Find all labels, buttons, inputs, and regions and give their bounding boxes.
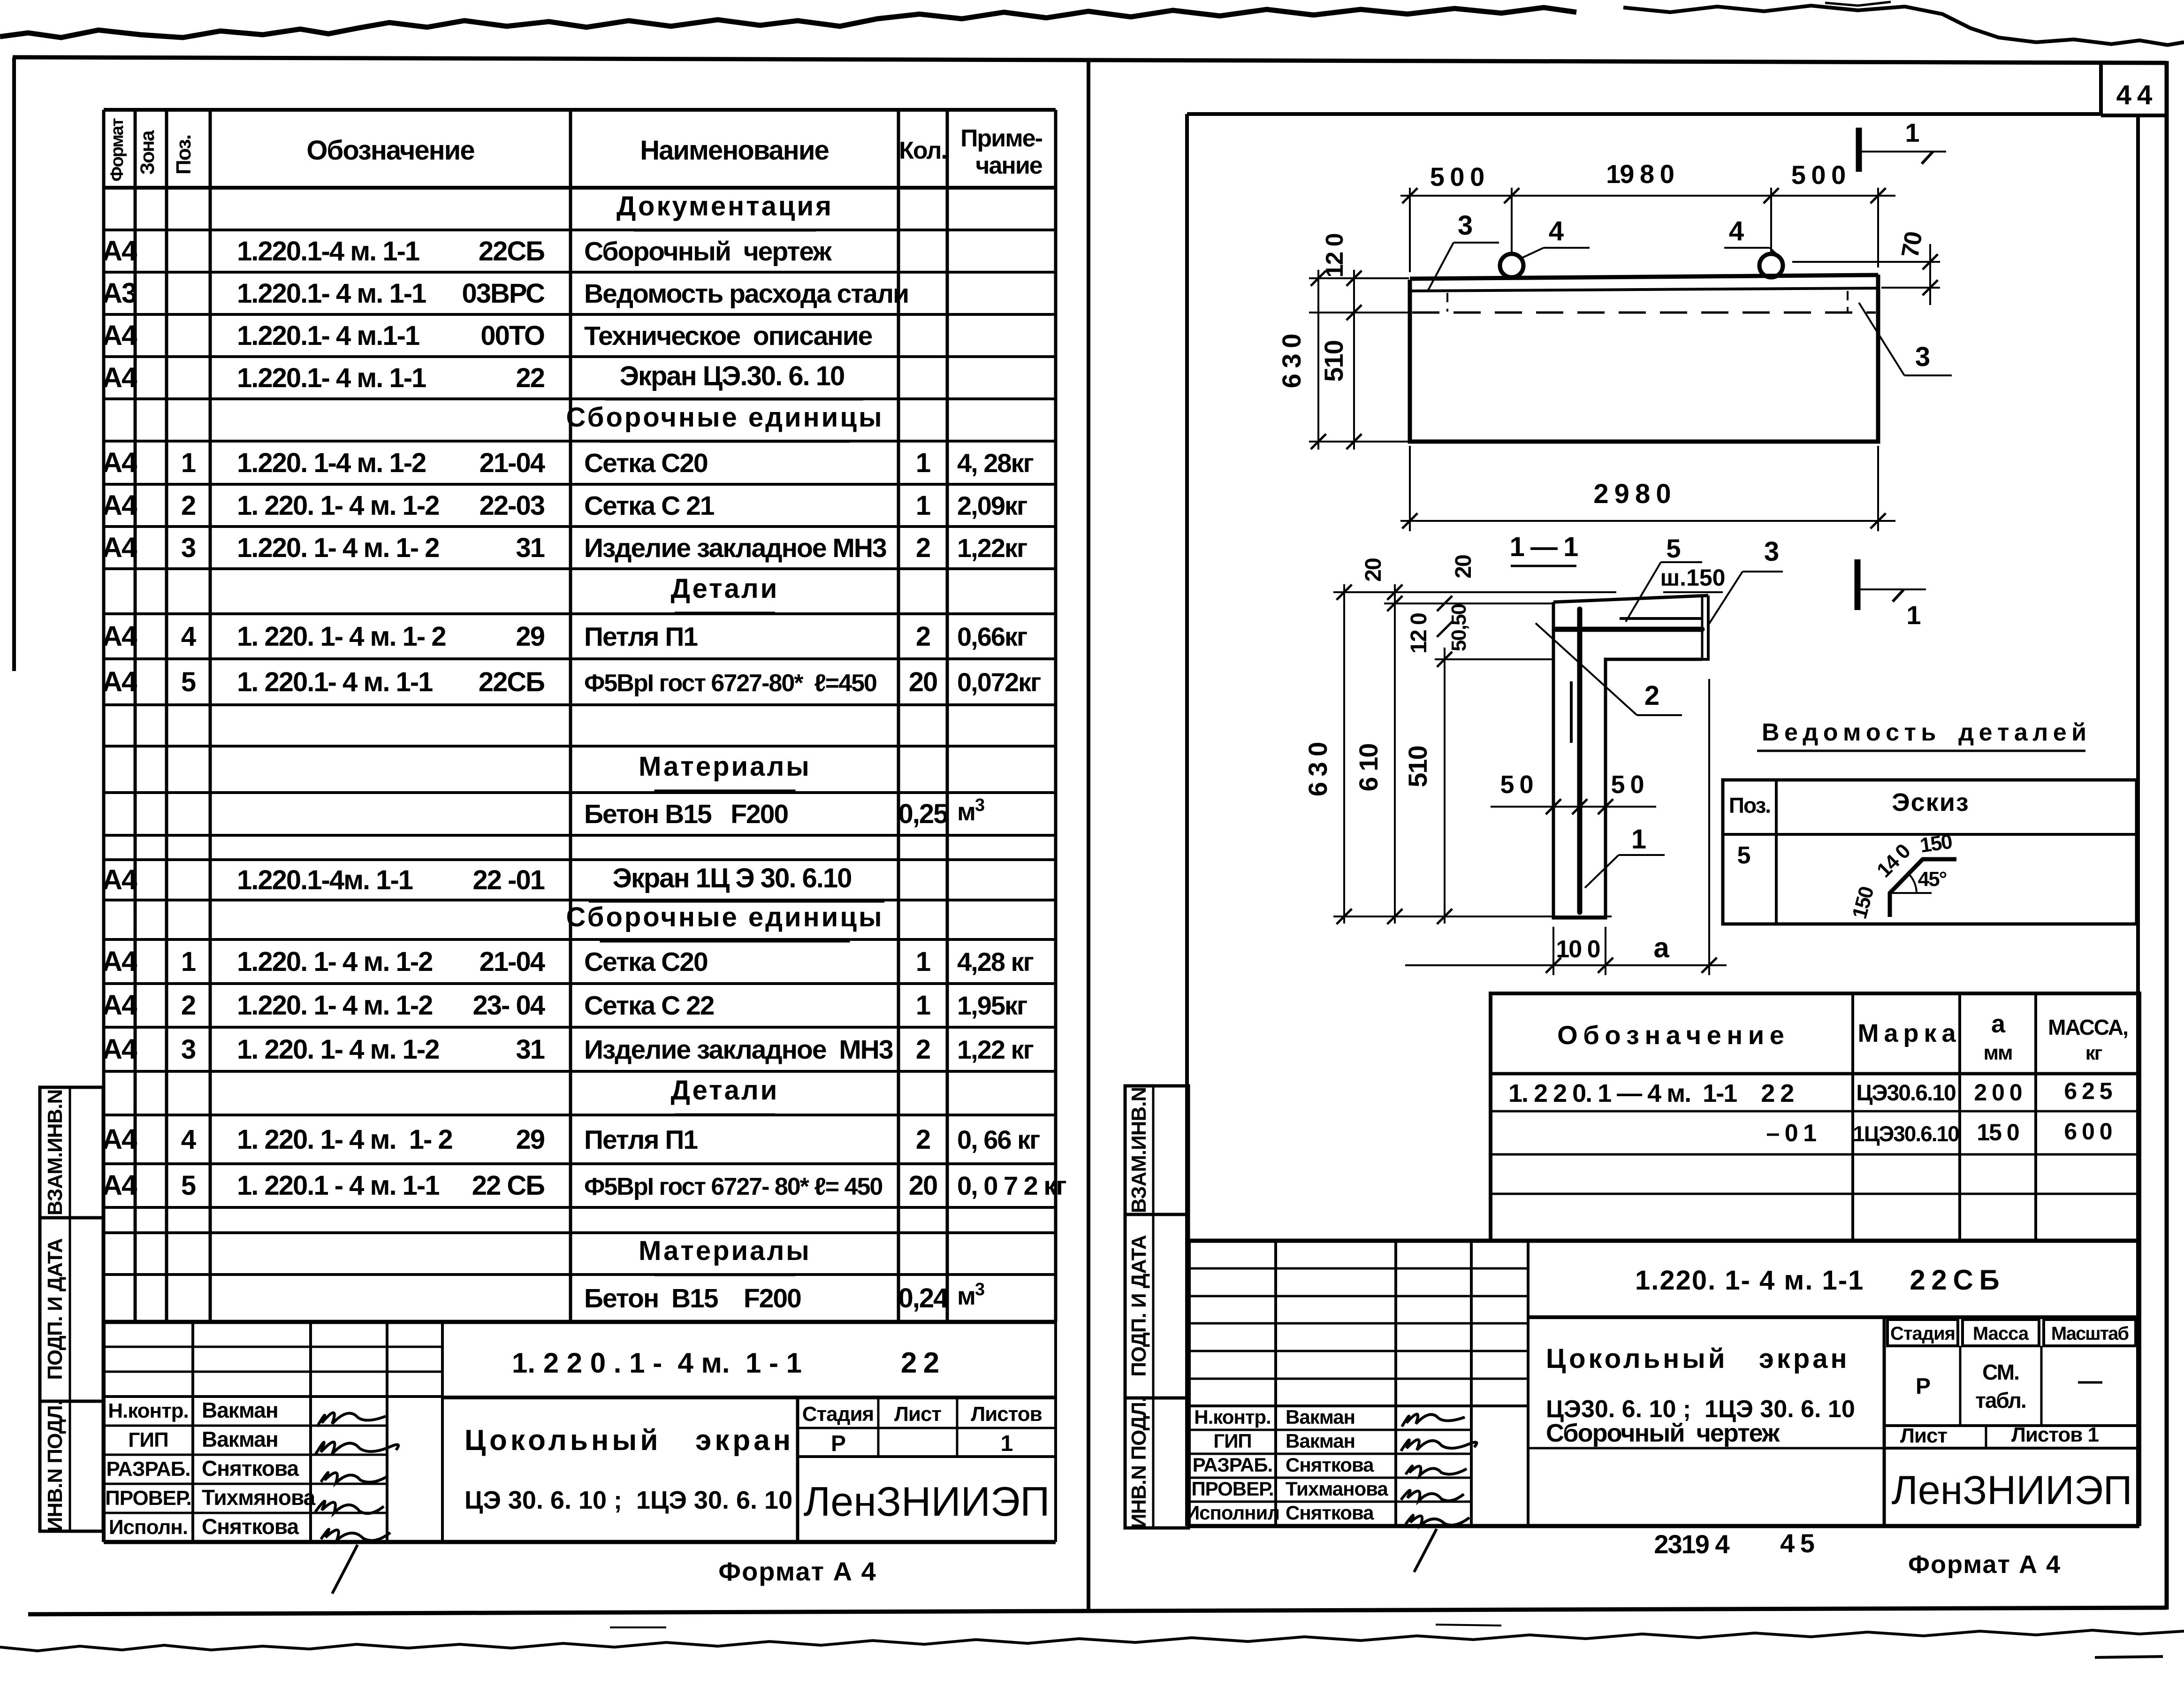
- svg-text:4,28 кг: 4,28 кг: [957, 947, 1034, 977]
- svg-text:150: 150: [1918, 830, 1953, 857]
- svg-text:5: 5: [181, 1170, 196, 1201]
- svg-text:45°: 45°: [1918, 868, 1947, 891]
- svg-text:2: 2: [916, 1034, 930, 1065]
- svg-text:1.220.1- 4 м.1-1: 1.220.1- 4 м.1-1: [237, 321, 419, 351]
- svg-text:М а р к а: М а р к а: [1857, 1019, 1956, 1047]
- svg-text:1. 220. 1- 4 м. 1- 2: 1. 220. 1- 4 м. 1- 2: [237, 621, 446, 652]
- svg-text:Материалы: Материалы: [639, 751, 811, 782]
- svg-text:1. 220.1- 4 м. 1-1: 1. 220.1- 4 м. 1-1: [237, 667, 433, 697]
- svg-text:Бетон В15 F200: Бетон В15 F200: [584, 1283, 801, 1313]
- svg-text:2: 2: [916, 533, 930, 563]
- svg-text:Цокольный экран: Цокольный экран: [1546, 1343, 1850, 1374]
- svg-text:Ф5ВрI гост 6727- 80* ℓ= 450: Ф5ВрI гост 6727- 80* ℓ= 450: [584, 1173, 882, 1200]
- svg-text:6 3 0: 6 3 0: [1277, 335, 1306, 389]
- svg-text:3: 3: [181, 1034, 196, 1065]
- svg-text:А4: А4: [102, 864, 137, 895]
- svg-text:5: 5: [1666, 534, 1680, 563]
- svg-text:кг: кг: [2085, 1042, 2102, 1064]
- svg-text:Тихманова: Тихманова: [1286, 1478, 1388, 1500]
- svg-text:1,22 кг: 1,22 кг: [957, 1035, 1034, 1064]
- svg-text:ГИП: ГИП: [1213, 1430, 1251, 1452]
- svg-text:2: 2: [916, 621, 930, 652]
- svg-text:22-03: 22-03: [479, 490, 545, 521]
- svg-text:ЦЭ30.6.10: ЦЭ30.6.10: [1856, 1081, 1956, 1106]
- svg-text:1.220.1-4 м. 1-1: 1.220.1-4 м. 1-1: [237, 236, 419, 267]
- svg-text:Экран ЦЭ.30. 6. 10: Экран ЦЭ.30. 6. 10: [620, 361, 845, 391]
- svg-text:—: —: [2078, 1367, 2102, 1395]
- svg-text:5 0: 5 0: [1611, 771, 1643, 799]
- svg-text:Сняткова: Сняткова: [202, 1456, 299, 1481]
- svg-text:Ф5ВрI гост 6727-80* ℓ=450: Ф5ВрI гост 6727-80* ℓ=450: [584, 670, 876, 697]
- svg-text:3: 3: [1764, 536, 1779, 567]
- svg-text:Поз.: Поз.: [1729, 793, 1770, 817]
- svg-text:– 0 1: – 0 1: [1766, 1120, 1816, 1147]
- svg-text:ПОДП. И ДАТА: ПОДП. И ДАТА: [1127, 1235, 1150, 1377]
- svg-text:4, 28кг: 4, 28кг: [957, 448, 1034, 478]
- svg-text:1: 1: [916, 490, 930, 521]
- svg-text:0,072кг: 0,072кг: [957, 667, 1041, 697]
- svg-text:1. 220. 1- 4 м. 1- 2: 1. 220. 1- 4 м. 1- 2: [237, 1124, 452, 1155]
- svg-text:1. 220. 1- 4 м. 1-2: 1. 220. 1- 4 м. 1-2: [237, 1034, 439, 1065]
- svg-text:510: 510: [1319, 341, 1348, 382]
- svg-text:Детали: Детали: [671, 573, 779, 604]
- svg-text:Тихмянова: Тихмянова: [202, 1485, 316, 1510]
- svg-text:3: 3: [1915, 342, 1930, 372]
- svg-text:1. 2 2 0. 1 — 4 м. 1-1 2 2: 1. 2 2 0. 1 — 4 м. 1-1 2 2: [1508, 1079, 1793, 1107]
- svg-text:20: 20: [909, 667, 937, 697]
- svg-text:Р: Р: [831, 1431, 845, 1456]
- svg-text:0,66кг: 0,66кг: [957, 622, 1027, 651]
- svg-text:50,50: 50,50: [1447, 604, 1470, 651]
- svg-text:22СБ: 22СБ: [479, 667, 544, 697]
- svg-text:Стадия: Стадия: [802, 1403, 874, 1426]
- svg-text:Петля П1: Петля П1: [584, 1125, 698, 1155]
- svg-text:Вакман: Вакман: [1286, 1406, 1355, 1428]
- svg-text:a: a: [1991, 1010, 2006, 1038]
- svg-text:Лист: Лист: [1900, 1424, 1947, 1447]
- svg-text:ЛенЗНИИЭП: ЛенЗНИИЭП: [804, 1478, 1050, 1525]
- svg-text:3: 3: [975, 795, 984, 815]
- svg-text:5: 5: [181, 667, 196, 697]
- svg-text:ПРОВЕР.: ПРОВЕР.: [105, 1487, 191, 1510]
- svg-text:20: 20: [1361, 558, 1386, 582]
- svg-text:1.220. 1- 4 м. 1-2: 1.220. 1- 4 м. 1-2: [237, 947, 432, 977]
- svg-text:А4: А4: [102, 447, 137, 478]
- svg-text:Вакман: Вакман: [202, 1427, 278, 1451]
- svg-text:21-04: 21-04: [479, 947, 545, 977]
- svg-text:ПРОВЕР.: ПРОВЕР.: [1191, 1478, 1273, 1500]
- svg-text:1. 220. 1- 4 м. 1-2: 1. 220. 1- 4 м. 1-2: [237, 490, 439, 521]
- svg-text:Материалы: Материалы: [639, 1236, 811, 1266]
- svg-text:А4: А4: [102, 1169, 137, 1201]
- svg-text:А4: А4: [102, 362, 137, 393]
- svg-text:ИНВ.N ПОДЛ.: ИНВ.N ПОДЛ.: [1127, 1397, 1150, 1528]
- svg-text:22 СБ: 22 СБ: [472, 1170, 545, 1201]
- svg-text:1.220. 1- 4 м. 1- 2: 1.220. 1- 4 м. 1- 2: [237, 533, 439, 563]
- svg-text:2 0 0: 2 0 0: [1974, 1079, 2021, 1106]
- svg-text:Изделие закладное МН3: Изделие закладное МН3: [584, 1035, 893, 1065]
- svg-text:2 2: 2 2: [901, 1347, 938, 1379]
- svg-text:23- 04: 23- 04: [473, 990, 545, 1021]
- svg-text:ЛенЗНИИЭП: ЛенЗНИИЭП: [1891, 1468, 2132, 1513]
- svg-text:1 — 1: 1 — 1: [1510, 532, 1578, 562]
- svg-text:5 0: 5 0: [1500, 771, 1532, 799]
- svg-text:СМ.: СМ.: [1982, 1360, 2019, 1384]
- svg-text:1.220.1- 4 м. 1-1: 1.220.1- 4 м. 1-1: [237, 278, 426, 309]
- svg-text:22СБ: 22СБ: [479, 236, 544, 267]
- svg-text:00ТО: 00ТО: [480, 321, 544, 351]
- svg-text:2: 2: [916, 1124, 930, 1155]
- svg-text:Детали: Детали: [671, 1075, 779, 1106]
- svg-text:6 3 0: 6 3 0: [1303, 743, 1332, 797]
- svg-text:5: 5: [1737, 842, 1750, 869]
- svg-text:12 0: 12 0: [1321, 234, 1348, 277]
- svg-text:Поз.: Поз.: [172, 135, 195, 175]
- svg-text:Исполн.: Исполн.: [109, 1516, 188, 1539]
- svg-text:Листов 1: Листов 1: [2011, 1423, 2099, 1446]
- svg-text:Сборочные единицы: Сборочные единицы: [566, 402, 884, 433]
- svg-text:2: 2: [1644, 680, 1659, 711]
- svg-text:м: м: [957, 1282, 975, 1310]
- svg-text:6 2 5: 6 2 5: [2064, 1078, 2112, 1104]
- svg-text:Петля П1: Петля П1: [584, 622, 698, 652]
- svg-text:Сборочный чертеж: Сборочный чертеж: [584, 237, 832, 267]
- svg-text:3: 3: [181, 533, 196, 563]
- svg-text:Изделие закладное МН3: Изделие закладное МН3: [584, 533, 886, 563]
- svg-text:Техническое описание: Техническое описание: [584, 321, 872, 351]
- svg-text:МАССА,: МАССА,: [2048, 1015, 2128, 1039]
- svg-text:ВЗАМ.ИНВ.N: ВЗАМ.ИНВ.N: [1127, 1087, 1150, 1214]
- svg-text:1: 1: [916, 947, 930, 977]
- svg-text:1. 2 2 0 . 1 - 4 м. 1 - 1: 1. 2 2 0 . 1 - 4 м. 1 - 1: [512, 1347, 802, 1379]
- svg-text:1: 1: [1001, 1431, 1013, 1456]
- svg-text:510: 510: [1403, 746, 1432, 787]
- svg-text:А4: А4: [102, 532, 137, 563]
- svg-text:А4: А4: [102, 320, 137, 351]
- svg-text:1.220. 1-4 м. 1-2: 1.220. 1-4 м. 1-2: [237, 448, 426, 478]
- svg-text:Масса: Масса: [1973, 1323, 2029, 1344]
- svg-text:Формат А 4: Формат А 4: [1908, 1550, 2061, 1579]
- svg-text:Листов: Листов: [971, 1403, 1042, 1426]
- svg-text:Сетка С20: Сетка С20: [584, 947, 708, 977]
- svg-text:2,09кг: 2,09кг: [957, 491, 1027, 520]
- svg-text:1.220.1- 4 м. 1-1: 1.220.1- 4 м. 1-1: [237, 363, 426, 393]
- svg-text:1. 220.1 - 4 м. 1-1: 1. 220.1 - 4 м. 1-1: [237, 1170, 439, 1201]
- svg-text:Обозначение: Обозначение: [306, 135, 474, 166]
- svg-text:4: 4: [1549, 216, 1564, 246]
- svg-text:Р: Р: [1916, 1374, 1930, 1399]
- svg-text:12 0: 12 0: [1407, 613, 1431, 654]
- svg-text:РАЗРАБ.: РАЗРАБ.: [1193, 1454, 1272, 1476]
- svg-text:20: 20: [1451, 555, 1476, 579]
- svg-text:Экран 1Ц Э 30. 6.10: Экран 1Ц Э 30. 6.10: [613, 863, 852, 893]
- svg-text:6 10: 6 10: [1354, 744, 1383, 792]
- svg-text:21-04: 21-04: [479, 448, 545, 478]
- svg-text:0, 0 7 2 кг: 0, 0 7 2 кг: [957, 1171, 1066, 1200]
- svg-text:4: 4: [181, 621, 196, 652]
- svg-text:Сетка С 22: Сетка С 22: [584, 991, 714, 1021]
- svg-text:А4: А4: [102, 235, 137, 267]
- svg-text:А4: А4: [102, 666, 137, 697]
- svg-text:1.220. 1- 4 м. 1-1: 1.220. 1- 4 м. 1-1: [1635, 1265, 1864, 1296]
- svg-text:5 0 0: 5 0 0: [1791, 160, 1845, 190]
- svg-text:2 2 С Б: 2 2 С Б: [1910, 1264, 1998, 1296]
- svg-text:А4: А4: [102, 1123, 137, 1155]
- svg-text:1: 1: [181, 448, 196, 478]
- svg-text:0,25: 0,25: [898, 799, 948, 829]
- svg-text:3: 3: [1458, 210, 1472, 241]
- svg-text:15 0: 15 0: [1977, 1119, 2019, 1145]
- svg-text:Ведомость расхода стали: Ведомость расхода стали: [584, 279, 908, 309]
- svg-text:Кол.: Кол.: [899, 137, 947, 164]
- svg-text:Н.контр.: Н.контр.: [1194, 1406, 1271, 1428]
- svg-text:4: 4: [1729, 216, 1744, 246]
- svg-text:ш.150: ш.150: [1660, 565, 1726, 591]
- svg-text:a: a: [1653, 932, 1669, 963]
- svg-text:Масштаб: Масштаб: [2051, 1323, 2129, 1344]
- svg-text:Зона: Зона: [136, 130, 158, 175]
- svg-text:О б о з н а ч е н и е: О б о з н а ч е н и е: [1557, 1020, 1784, 1050]
- svg-text:ПОДП. И ДАТА: ПОДП. И ДАТА: [44, 1238, 67, 1380]
- svg-text:Лист: Лист: [894, 1403, 941, 1426]
- svg-text:31: 31: [516, 1034, 544, 1065]
- svg-text:А3: А3: [102, 277, 137, 309]
- svg-text:Бетон В15 F200: Бетон В15 F200: [584, 799, 788, 829]
- svg-text:2: 2: [181, 990, 195, 1021]
- svg-text:19 8 0: 19 8 0: [1606, 159, 1674, 189]
- svg-text:Вакман: Вакман: [1286, 1430, 1355, 1452]
- svg-text:В е д о м о с т ь д е т а л: В е д о м о с т ь д е т а л е й: [1762, 719, 2085, 746]
- svg-text:2: 2: [181, 490, 195, 521]
- svg-text:чание: чание: [975, 152, 1042, 179]
- svg-text:29: 29: [516, 1124, 544, 1155]
- svg-text:Приме-: Приме-: [960, 125, 1042, 152]
- svg-text:1,95кг: 1,95кг: [957, 991, 1027, 1020]
- svg-text:6 0 0: 6 0 0: [2064, 1118, 2111, 1145]
- svg-text:22 -01: 22 -01: [473, 865, 545, 895]
- svg-text:4 5: 4 5: [1780, 1528, 1814, 1558]
- svg-text:Документация: Документация: [616, 191, 833, 221]
- svg-text:Цокольный экран: Цокольный экран: [464, 1424, 794, 1457]
- svg-text:Наименование: Наименование: [640, 135, 829, 166]
- svg-text:5 0 0: 5 0 0: [1430, 162, 1484, 191]
- svg-text:1,22кг: 1,22кг: [957, 533, 1027, 563]
- svg-text:ЦЭ 30. 6. 10 ; 1ЦЭ 30. 6. 10: ЦЭ 30. 6. 10 ; 1ЦЭ 30. 6. 10: [464, 1486, 792, 1514]
- svg-text:4: 4: [181, 1124, 196, 1155]
- svg-text:Сняткова: Сняткова: [1286, 1454, 1374, 1476]
- svg-text:1.220.1-4м. 1-1: 1.220.1-4м. 1-1: [237, 865, 413, 895]
- svg-text:70: 70: [1896, 230, 1927, 260]
- svg-text:Формат А 4: Формат А 4: [718, 1557, 876, 1586]
- svg-text:03ВРС: 03ВРС: [462, 278, 545, 309]
- svg-text:табл.: табл.: [1975, 1388, 2025, 1412]
- svg-text:Исполнил: Исполнил: [1186, 1502, 1279, 1524]
- svg-text:м: м: [957, 798, 975, 826]
- svg-text:20: 20: [909, 1170, 937, 1201]
- svg-text:29: 29: [516, 621, 544, 652]
- svg-text:ИНВ.N ПОДЛ.: ИНВ.N ПОДЛ.: [44, 1400, 67, 1532]
- svg-text:А4: А4: [102, 620, 137, 652]
- svg-text:0, 66 кг: 0, 66 кг: [957, 1125, 1040, 1154]
- svg-text:А4: А4: [102, 489, 137, 521]
- svg-text:Эскиз: Эскиз: [1892, 788, 1970, 817]
- svg-text:10 0: 10 0: [1556, 936, 1599, 963]
- svg-text:Стадия: Стадия: [1890, 1323, 1955, 1344]
- svg-text:1: 1: [1906, 600, 1920, 630]
- svg-text:Сетка С 21: Сетка С 21: [584, 491, 715, 521]
- svg-text:А4: А4: [102, 1033, 137, 1065]
- svg-text:Н.контр.: Н.контр.: [108, 1399, 189, 1422]
- svg-text:Сняткова: Сняткова: [1286, 1502, 1374, 1524]
- svg-text:Сетка С20: Сетка С20: [584, 448, 708, 478]
- svg-text:1ЦЭ30.6.10: 1ЦЭ30.6.10: [1853, 1122, 1959, 1146]
- svg-text:Вакман: Вакман: [202, 1398, 278, 1422]
- svg-text:2319 4: 2319 4: [1654, 1529, 1729, 1559]
- svg-text:0,24: 0,24: [898, 1283, 949, 1313]
- svg-text:22: 22: [516, 363, 544, 393]
- svg-text:1: 1: [1905, 118, 1919, 147]
- svg-text:1: 1: [916, 990, 930, 1021]
- svg-text:1.220. 1- 4 м. 1-2: 1.220. 1- 4 м. 1-2: [237, 990, 432, 1021]
- svg-text:Сборочный чертеж: Сборочный чертеж: [1546, 1419, 1780, 1447]
- svg-text:Формат: Формат: [107, 118, 127, 182]
- svg-text:1: 1: [916, 448, 930, 478]
- svg-text:мм: мм: [1983, 1041, 2012, 1064]
- svg-text:ВЗАМ.ИНВ.N: ВЗАМ.ИНВ.N: [44, 1090, 67, 1216]
- svg-text:РАЗРАБ.: РАЗРАБ.: [107, 1458, 190, 1481]
- svg-text:31: 31: [516, 533, 544, 563]
- svg-text:ГИП: ГИП: [128, 1428, 168, 1451]
- svg-text:1: 1: [181, 947, 196, 977]
- svg-text:Сборочные единицы: Сборочные единицы: [566, 902, 884, 932]
- svg-text:А4: А4: [102, 989, 137, 1021]
- svg-text:1: 1: [1631, 824, 1646, 855]
- svg-text:4 4: 4 4: [2116, 80, 2152, 110]
- svg-text:А4: А4: [102, 946, 137, 977]
- svg-text:Сняткова: Сняткова: [202, 1514, 299, 1539]
- svg-text:3: 3: [975, 1280, 984, 1299]
- svg-text:2 9 8 0: 2 9 8 0: [1593, 479, 1670, 509]
